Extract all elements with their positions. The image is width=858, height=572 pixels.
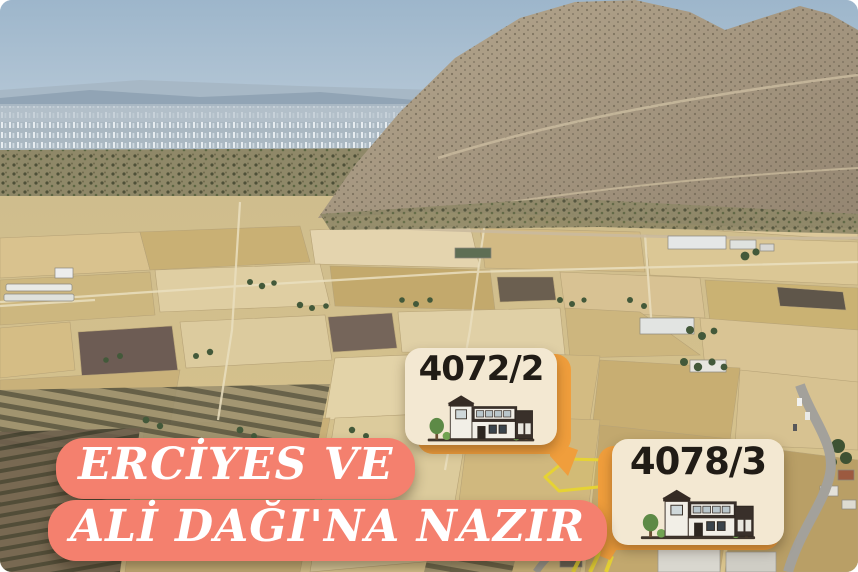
parcel-card: 4072/2 — [405, 348, 557, 445]
parcel-card: 4078/3 — [612, 439, 784, 545]
parcel-number: 4072/2 — [419, 352, 544, 388]
house-icon — [631, 483, 765, 543]
tree-icon — [643, 514, 666, 538]
parcel-card-4078-3: 4078/3 — [596, 430, 816, 572]
house-icon — [419, 389, 543, 445]
parcel-card-4072-2: 4072/2 — [400, 344, 610, 494]
caption-line-2: ALİ DAĞI'NA NAZIR — [48, 500, 607, 561]
tree-icon — [430, 418, 451, 440]
parcel-number: 4078/3 — [630, 443, 766, 482]
drone-photo-frame: 4072/2 — [0, 0, 858, 572]
caption-line-1: ERCİYES VE — [56, 438, 415, 499]
